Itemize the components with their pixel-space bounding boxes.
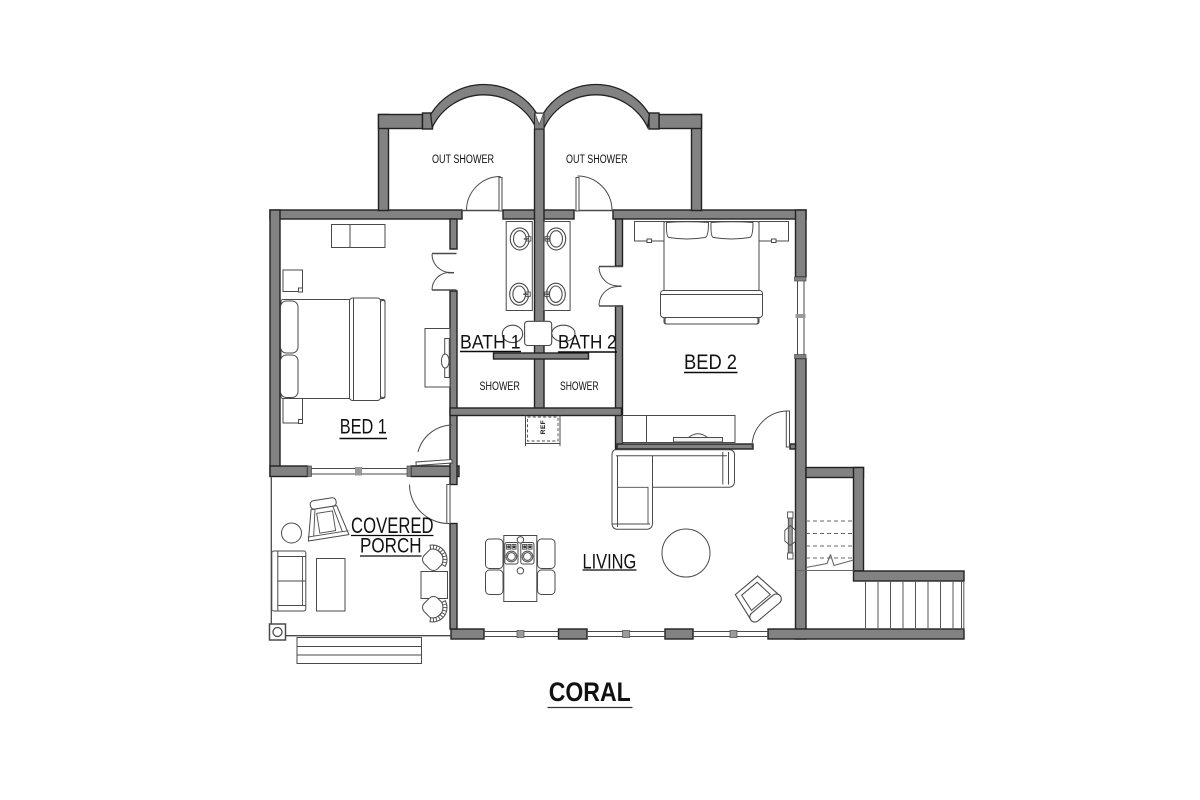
svg-text:OUT SHOWER: OUT SHOWER <box>432 154 494 166</box>
svg-text:BED 1: BED 1 <box>340 416 387 439</box>
svg-text:CORAL: CORAL <box>549 677 631 707</box>
svg-text:BATH 2: BATH 2 <box>558 332 617 354</box>
svg-text:BED 2: BED 2 <box>684 351 737 374</box>
svg-text:PORCH: PORCH <box>360 535 422 558</box>
svg-text:REF: REF <box>540 420 547 435</box>
svg-text:BATH 1: BATH 1 <box>460 332 521 354</box>
svg-text:SHOWER: SHOWER <box>480 379 521 393</box>
svg-text:OUT SHOWER: OUT SHOWER <box>566 154 628 166</box>
svg-text:SHOWER: SHOWER <box>560 379 599 393</box>
